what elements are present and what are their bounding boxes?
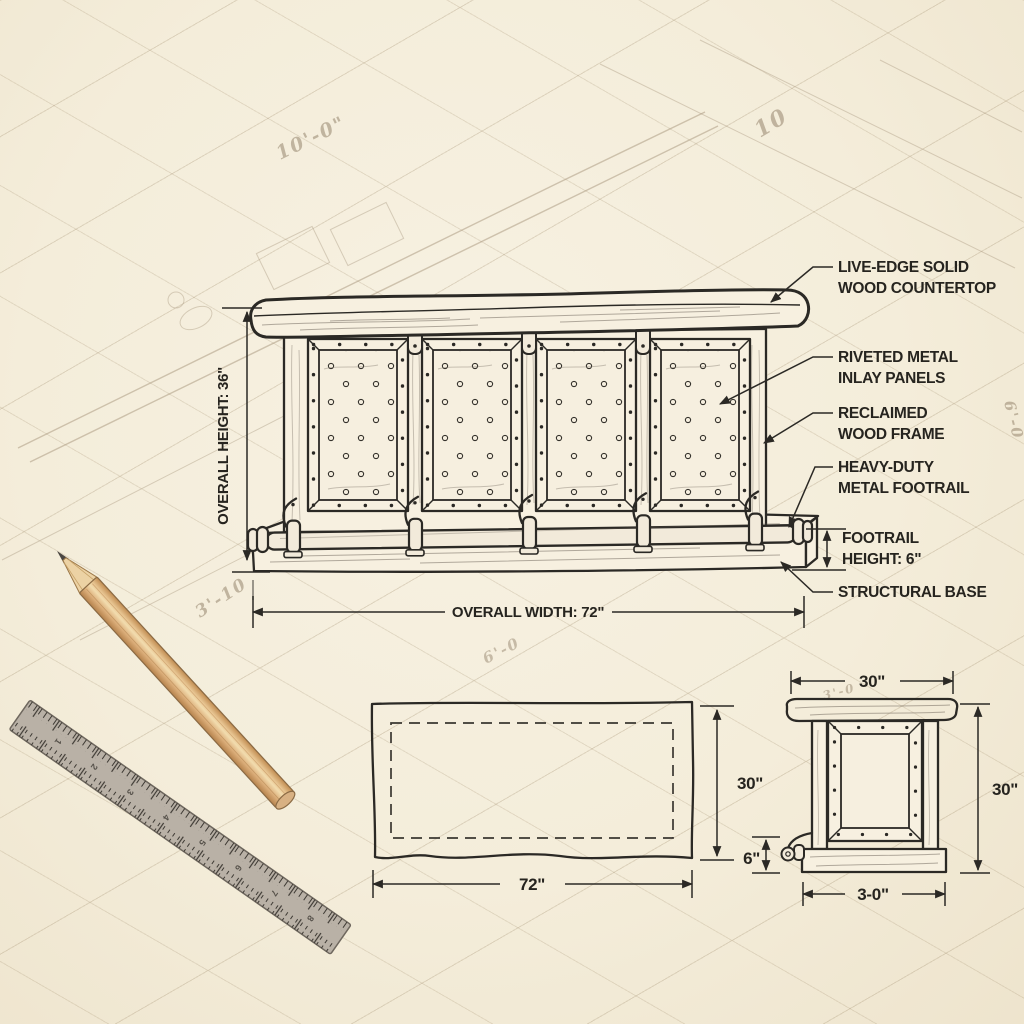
callout-label: INLAY PANELS — [838, 370, 945, 387]
sketch-annotation: 6'-0 — [1000, 399, 1024, 442]
callout-label: WOOD COUNTERTOP — [838, 280, 996, 297]
side-left-stile — [812, 721, 827, 849]
plan-depth-label: 30" — [737, 774, 763, 793]
callout-label: LIVE-EDGE SOLID — [838, 259, 969, 276]
plan-dim-width: 72" — [373, 870, 692, 898]
side-dim-base: 3-0" — [803, 882, 945, 906]
overall-height-dim-label: OVERALL HEIGHT: 36" — [215, 367, 232, 525]
sketch-annotation: 3'-10 — [192, 574, 251, 622]
side-top-width-label: 30" — [859, 672, 885, 691]
blueprint-canvas: 10'-0" 10 3'-10 6'-0 6'-0 3'-0 — [0, 0, 1024, 1024]
side-footrail-height-label: 6" — [743, 849, 760, 868]
sketch-annotation: 10'-0" — [273, 112, 350, 165]
side-height-label: 30" — [992, 780, 1018, 799]
footrail-height-label: HEIGHT: 6" — [842, 551, 921, 568]
callout-label: RECLAIMED — [838, 405, 928, 422]
callout-label: RIVETED METAL — [838, 349, 958, 366]
side-panel — [828, 721, 922, 841]
callout-label: HEAVY-DUTY — [838, 459, 935, 476]
side-base-width-label: 3-0" — [857, 885, 888, 904]
ruler: 1 2 3 4 5 6 7 8 — [9, 700, 351, 954]
main-elevation: OVERALL HEIGHT: 36" OVERALL WIDTH: 72" L… — [215, 259, 996, 628]
side-dim-top: 30" — [791, 671, 953, 694]
blueprint-drawing: 10'-0" 10 3'-10 6'-0 6'-0 3'-0 — [0, 0, 1024, 1024]
plan-view: 30" 72" — [372, 702, 763, 898]
sketch-annotation: 10 — [750, 103, 793, 143]
callout-label: METAL FOOTRAIL — [838, 480, 969, 497]
side-dim-height: 30" — [960, 704, 1018, 873]
panel-4 — [650, 339, 750, 511]
panel-3 — [536, 339, 636, 511]
plan-width-label: 72" — [519, 875, 545, 894]
dim-overall-width: OVERALL WIDTH: 72" — [253, 596, 804, 628]
side-dim-footrail: 6" — [743, 837, 780, 873]
side-base — [802, 849, 946, 872]
plan-countertop-outline — [391, 723, 673, 838]
overall-width-dim-label: OVERALL WIDTH: 72" — [452, 604, 604, 621]
footrail-height-label: FOOTRAIL — [842, 530, 919, 547]
callout-label: STRUCTURAL BASE — [838, 584, 987, 601]
side-elevation: 30" 30" 6" 3-0" — [743, 671, 1018, 906]
panel-1 — [308, 339, 408, 511]
side-right-stile — [923, 721, 938, 849]
callout-frame: RECLAIMED WOOD FRAME — [764, 405, 944, 443]
sketch-annotation: 6'-0 — [480, 634, 524, 668]
callout-label: WOOD FRAME — [838, 426, 944, 443]
panel-2 — [422, 339, 522, 511]
